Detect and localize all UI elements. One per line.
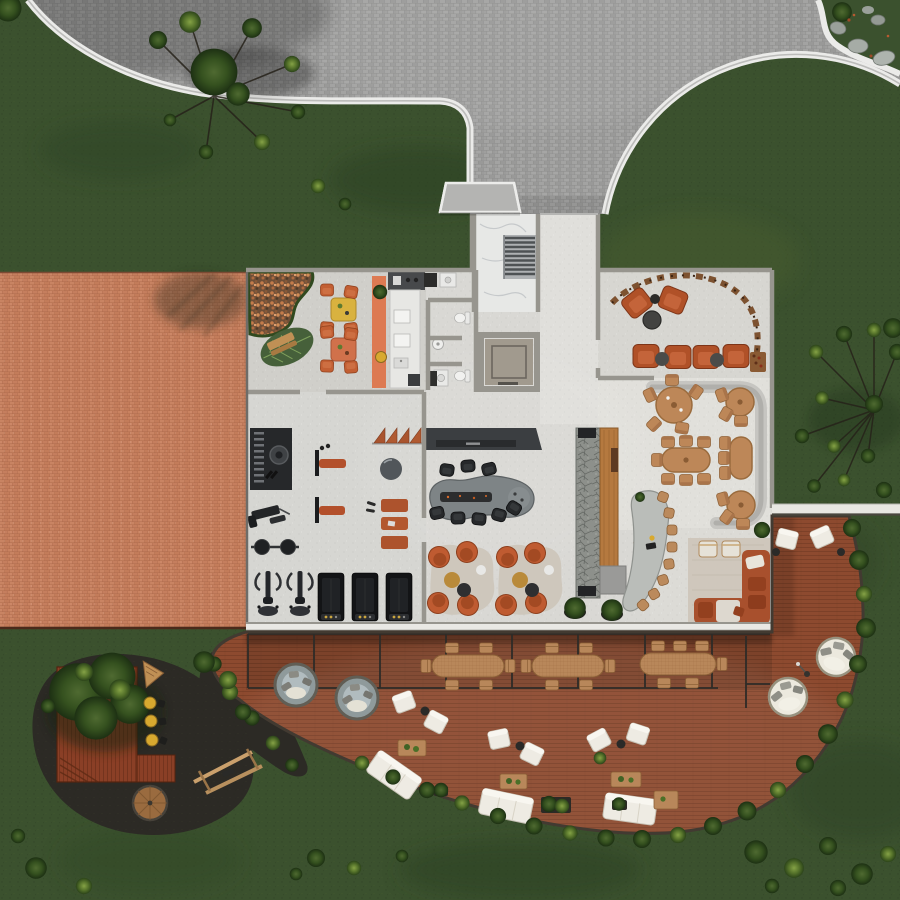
yellow-stool: [376, 352, 387, 363]
floorplan-canvas: [0, 0, 900, 900]
lounge-armchair: [699, 541, 717, 557]
coffee-table: [500, 774, 527, 789]
sunken-lounge: [275, 664, 317, 706]
corner-sofa-lounge: [688, 538, 770, 626]
retaining-wall: [772, 504, 900, 515]
exercise-ball: [380, 458, 402, 480]
entry-stair-hall: [476, 214, 536, 312]
dining-plant: [754, 522, 770, 538]
kitchenette: [388, 272, 425, 388]
side-table: [654, 791, 678, 809]
treadmill: [352, 573, 378, 621]
stairs: [504, 235, 536, 279]
yellow-stools: [144, 697, 168, 746]
lounge-armchair: [722, 541, 740, 557]
pill-table-v: [719, 437, 753, 480]
wall-rack: [250, 428, 292, 490]
treadmill: [318, 573, 344, 621]
treadmill: [386, 573, 412, 621]
entrance-canopy: [440, 183, 520, 216]
coffee-table: [611, 772, 641, 787]
elevator: [481, 335, 537, 389]
wine-cart: [750, 352, 766, 372]
sunken-lounge: [336, 677, 378, 719]
planter: [373, 285, 387, 299]
site-plan-render: [0, 0, 900, 900]
round-platform: [133, 786, 167, 820]
stone-feature-wall: [576, 428, 600, 598]
brick-roof-terrace: [0, 272, 248, 629]
coffee-table: [398, 740, 426, 756]
